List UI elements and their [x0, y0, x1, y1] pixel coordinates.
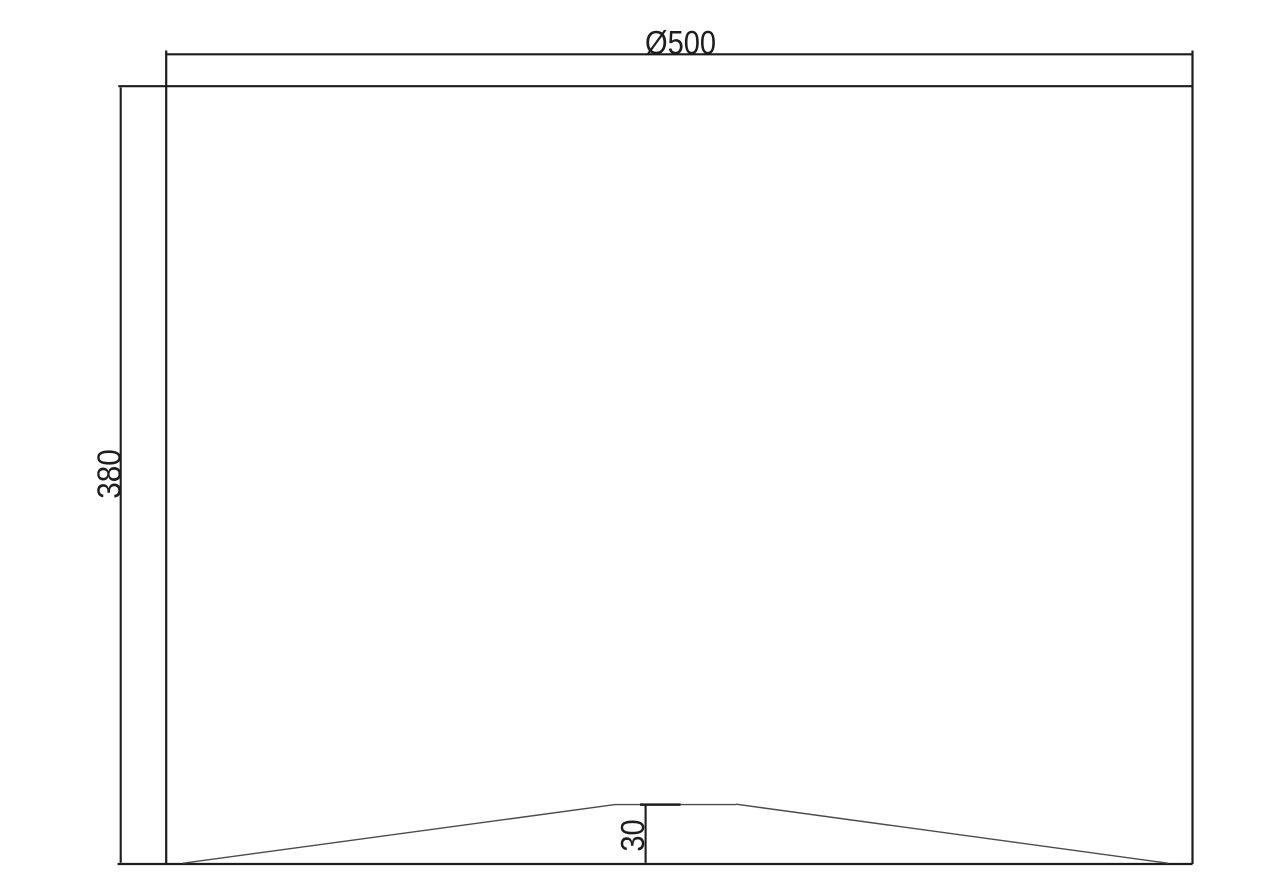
svg-text:380: 380 — [91, 449, 128, 499]
svg-text:Ø500: Ø500 — [645, 24, 716, 61]
svg-text:30: 30 — [614, 819, 651, 851]
